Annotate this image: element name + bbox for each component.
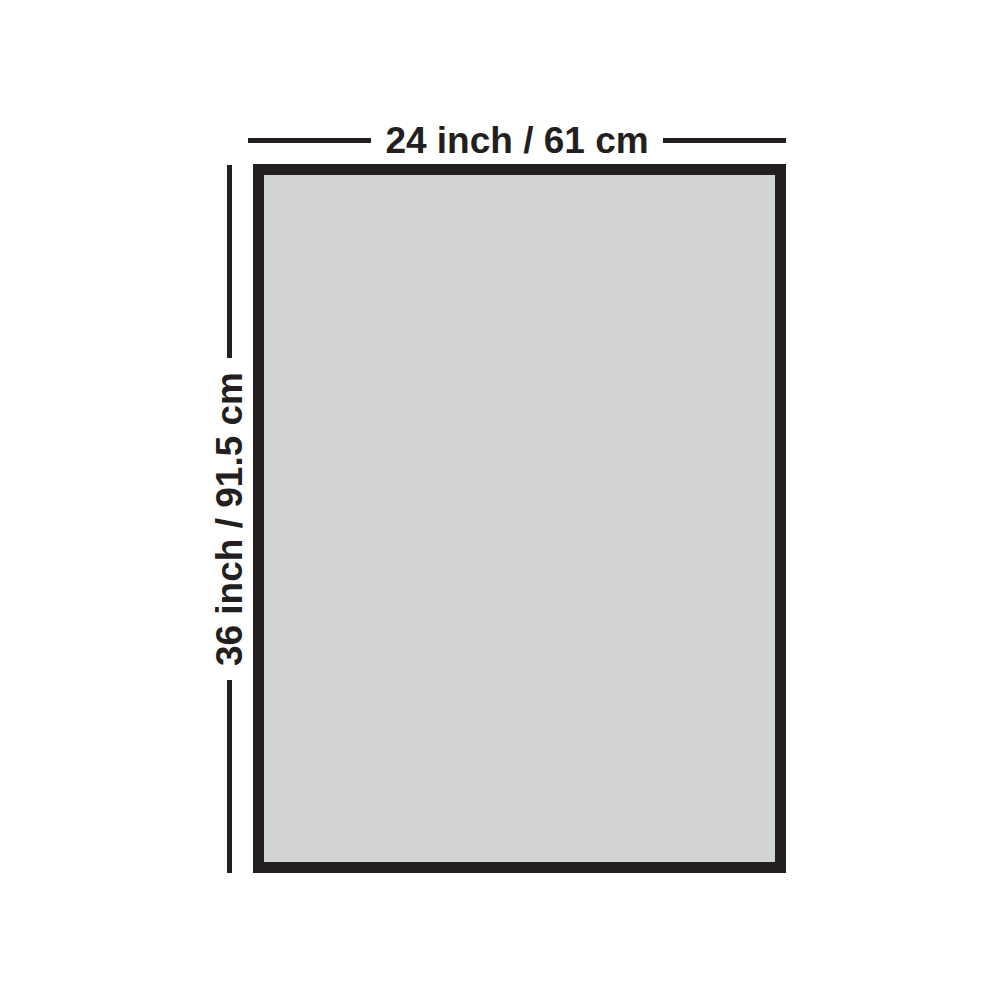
dimension-diagram: 24 inch / 61 cm 36 inch / 91.5 cm xyxy=(0,0,1000,1000)
height-dimension-line-bottom xyxy=(227,680,232,873)
width-dimension: 24 inch / 61 cm xyxy=(248,116,786,164)
frame-rectangle xyxy=(253,164,786,873)
height-dimension: 36 inch / 91.5 cm xyxy=(205,165,253,873)
height-dimension-label: 36 inch / 91.5 cm xyxy=(211,358,248,680)
width-dimension-line-left xyxy=(248,138,371,143)
width-dimension-label: 24 inch / 61 cm xyxy=(371,122,662,159)
height-dimension-line-top xyxy=(227,165,232,358)
width-dimension-line-right xyxy=(663,138,786,143)
